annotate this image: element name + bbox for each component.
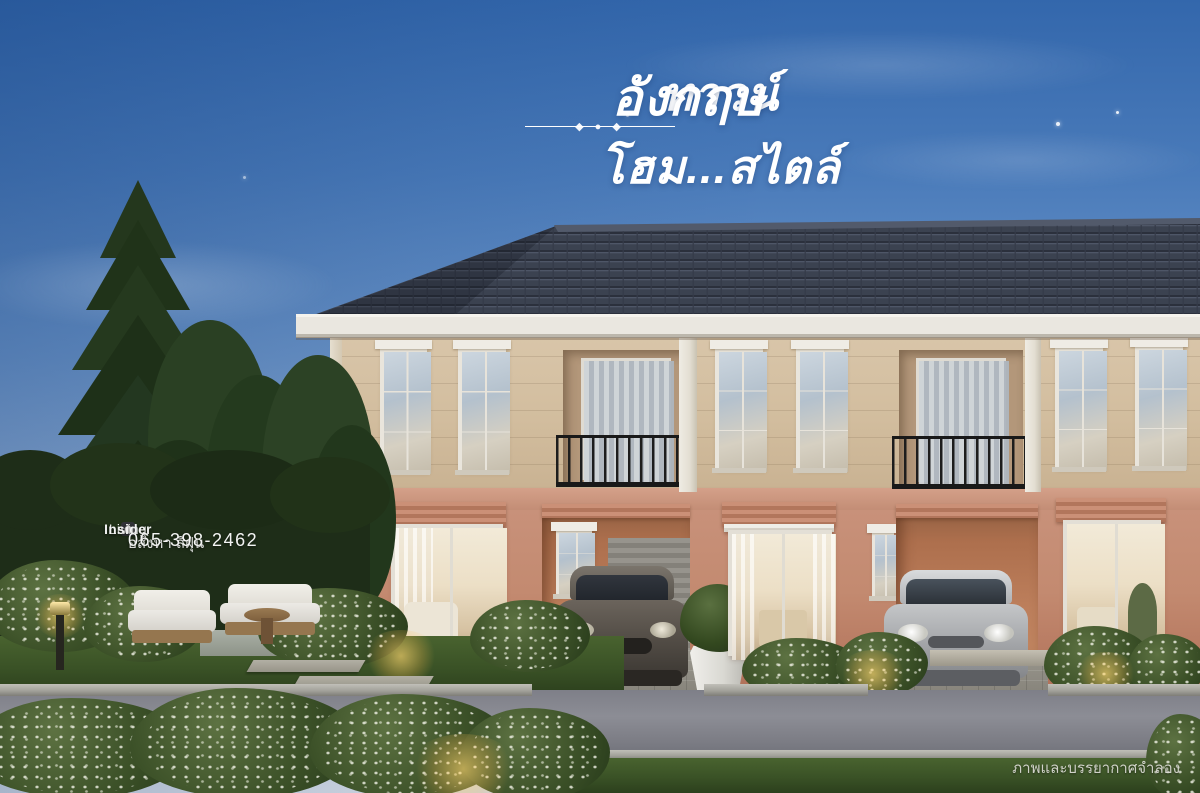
round-coffee-table [244, 608, 290, 646]
townhome-advertisement-image: ทาวน์โฮม...สไตล์อังกฤษ ◆ ● ◆ Living Insi… [0, 0, 1200, 793]
divider-line-right [525, 126, 675, 127]
sofa-seat [128, 610, 216, 632]
stepping-stone [247, 660, 366, 672]
ground-light-glow [362, 630, 440, 682]
flower-bush [1146, 714, 1200, 793]
outdoor-sofa-left [128, 590, 216, 646]
bollard-lamp-post [56, 612, 64, 670]
sofa-wicker-base [132, 630, 212, 643]
disclaimer-caption: ภาพและบรรยากาศจำลอง [1012, 756, 1180, 780]
flower-bush [470, 600, 590, 672]
bollard-lamp-head [50, 602, 70, 615]
table-pedestal [261, 618, 273, 644]
watermark-phone: 065-398-2462 [128, 530, 258, 551]
